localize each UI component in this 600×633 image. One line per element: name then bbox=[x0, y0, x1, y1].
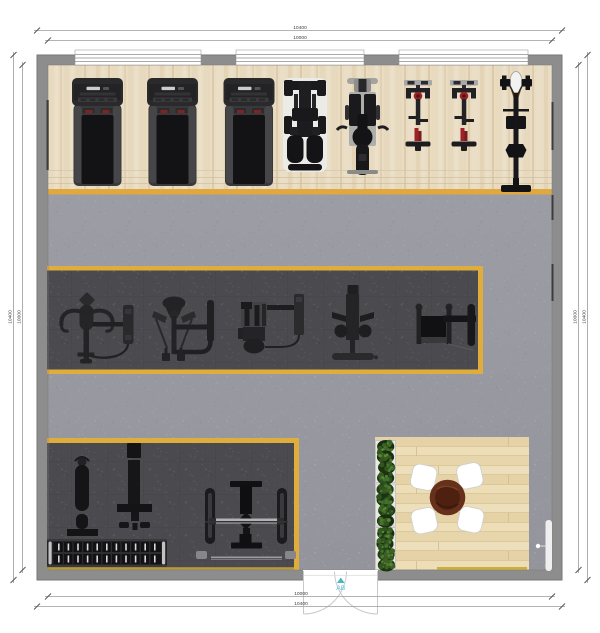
svg-text:10400: 10400 bbox=[293, 25, 307, 31]
svg-text:10000: 10000 bbox=[293, 35, 307, 41]
svg-text:AB: AB bbox=[336, 585, 346, 592]
svg-text:10000: 10000 bbox=[573, 310, 579, 324]
svg-text:10000: 10000 bbox=[294, 591, 308, 597]
svg-text:10400: 10400 bbox=[294, 601, 308, 607]
svg-text:10400: 10400 bbox=[582, 310, 588, 324]
svg-text:10000: 10000 bbox=[17, 310, 23, 324]
svg-text:10400: 10400 bbox=[8, 310, 14, 324]
